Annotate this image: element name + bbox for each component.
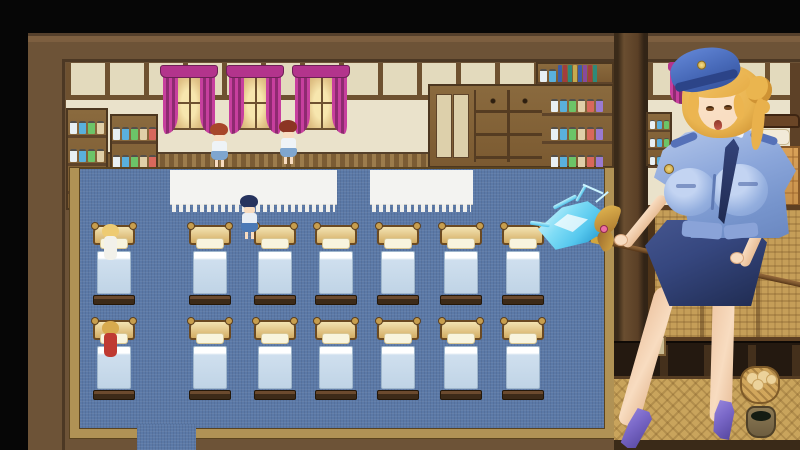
screen-seam: [756, 210, 760, 337]
hospital-bed: [379, 225, 417, 305]
bed-knob: [351, 317, 359, 325]
potion-jar-icon: [596, 99, 603, 112]
potion-jar-icon: [664, 120, 669, 129]
potion-jar-icon: [149, 155, 156, 168]
potion-jar-icon: [657, 138, 662, 147]
potion-jar-icon: [122, 155, 129, 168]
hospital-bed: [317, 225, 355, 305]
bed-sheet: [193, 251, 227, 294]
bed-pillow: [509, 238, 537, 249]
shelf-row: [648, 114, 670, 132]
bed-sheet: [258, 251, 292, 294]
potion-jar-icon: [113, 155, 120, 168]
bed-knob: [438, 222, 446, 230]
hospital-bed: [379, 320, 417, 400]
bed-sheet: [381, 346, 415, 389]
bed-knob: [91, 222, 99, 230]
potion-jar-icon: [587, 99, 594, 112]
cabinet-doors: [432, 90, 472, 162]
npc-skirt: [211, 151, 228, 160]
npc-nurse-redhead[interactable]: [209, 123, 229, 169]
potion-jar-icon: [560, 99, 567, 112]
potion-jar-icon: [569, 127, 576, 140]
bed-knob: [187, 222, 195, 230]
bed-sheet: [381, 251, 415, 294]
potion-jar-icon: [549, 69, 556, 82]
book-icon: [563, 65, 567, 82]
bed-sheet: [444, 251, 478, 294]
floor-edge-trim: [614, 440, 800, 450]
screen-post: [648, 210, 655, 337]
bread-icon: [766, 374, 777, 385]
potion-jar-icon: [664, 156, 669, 165]
potion-jar-icon: [650, 138, 655, 147]
potion-jar-icon: [79, 121, 86, 134]
bed-knob: [538, 222, 546, 230]
potion-jar-icon: [560, 127, 567, 140]
bed-knob: [129, 222, 137, 230]
bed-knob: [500, 222, 508, 230]
bed-knob: [438, 317, 446, 325]
potion-jar-icon: [140, 127, 147, 140]
bed-footboard: [315, 390, 357, 400]
bread-icon: [752, 379, 764, 391]
bed-pillow: [384, 333, 412, 344]
pillow: [714, 129, 750, 145]
npc-player-bluehair[interactable]: [239, 195, 259, 241]
book-row: [558, 65, 597, 82]
bed-sheet: [444, 346, 478, 389]
potion-jar-icon: [131, 127, 138, 140]
shelf-row: [648, 150, 670, 168]
shelf-row: [648, 132, 670, 150]
curtain-right: [332, 70, 347, 134]
side-room-bed: [708, 114, 800, 206]
potion-jar-icon: [88, 121, 95, 134]
potion-jar-icon: [540, 69, 547, 82]
cooking-pot-icon: [746, 406, 776, 438]
bed-pillow: [509, 333, 537, 344]
potion-jar-icon: [97, 149, 104, 162]
bed-sheet: [319, 346, 353, 389]
potion-jar-icon: [122, 127, 129, 140]
potion-shelf-icon: [646, 112, 672, 166]
pillow: [754, 129, 790, 145]
potion-jar-icon: [578, 99, 585, 112]
shelf-row: [542, 88, 612, 116]
bed-knob: [351, 222, 359, 230]
potion-jar-icon: [551, 155, 558, 168]
potion-jar-icon: [569, 99, 576, 112]
potion-jar-icon: [657, 156, 662, 165]
bed-pillow: [447, 238, 475, 249]
potion-jar-icon: [578, 127, 585, 140]
game-viewport[interactable]: [0, 0, 800, 450]
bed-knob: [538, 317, 546, 325]
book-icon: [568, 65, 572, 82]
bed-pillow: [322, 238, 350, 249]
bed-knob: [313, 317, 321, 325]
potion-jar-icon: [70, 149, 77, 162]
bed-footboard: [254, 295, 296, 305]
npc-legs: [215, 160, 224, 167]
npc-skirt: [241, 223, 258, 232]
jar-shelves: [542, 88, 612, 164]
bed-knob: [500, 317, 508, 325]
bed-pillow: [322, 333, 350, 344]
potion-jar-icon: [587, 127, 594, 140]
bed-headrail: [708, 114, 800, 128]
bed-knob: [476, 317, 484, 325]
potion-jar-icon: [596, 127, 603, 140]
bed-knob: [290, 222, 298, 230]
curtain-valance: [226, 65, 284, 78]
bed-sheet: [258, 346, 292, 389]
npc-skirt: [280, 148, 297, 157]
book-icon: [588, 65, 592, 82]
hospital-bed: [191, 225, 229, 305]
medicine-cabinet: [428, 84, 614, 168]
potion-jar-icon: [97, 121, 104, 134]
bed-pillow: [196, 238, 224, 249]
shelf-row: [112, 116, 156, 144]
curtain-valance: [160, 65, 218, 78]
potion-jar-icon: [551, 127, 558, 140]
bed-footboard: [254, 390, 296, 400]
npc-legs: [245, 232, 254, 239]
carpet-doorway-gap: [137, 424, 196, 450]
potion-jar-icon: [578, 155, 585, 168]
panel-post: [704, 345, 712, 377]
quilted-blanket: [708, 146, 800, 206]
panel-post: [792, 345, 800, 377]
door-panel: [453, 94, 469, 158]
bed-footboard: [502, 390, 544, 400]
potion-jar-icon: [596, 155, 603, 168]
hospital-bed: [442, 320, 480, 400]
bed-knob: [375, 317, 383, 325]
bed-pillow: [261, 238, 289, 249]
side-room-curtain: [670, 64, 708, 104]
curtain-left: [163, 70, 178, 134]
npc-patient-red[interactable]: [100, 321, 120, 357]
bed-footboard: [377, 295, 419, 305]
npc-body: [104, 236, 117, 260]
book-icon: [578, 65, 582, 82]
bed-knob: [290, 317, 298, 325]
bed-footboard: [93, 295, 135, 305]
potion-jar-icon: [70, 121, 77, 134]
hospital-bed: [504, 320, 542, 400]
bed-pillow: [384, 238, 412, 249]
bed-knob: [252, 317, 260, 325]
bed-sheet: [506, 346, 540, 389]
hospital-bed: [256, 225, 294, 305]
bed-footboard: [440, 390, 482, 400]
bed-knob: [375, 222, 383, 230]
curtain-left: [229, 70, 244, 134]
bed-knob: [187, 317, 195, 325]
bread-basket-icon: [740, 366, 780, 404]
bed-footboard: [502, 295, 544, 305]
potion-jar-icon: [587, 155, 594, 168]
bed-sheet: [193, 346, 227, 389]
bed-footboard: [93, 390, 135, 400]
npc-legs: [284, 157, 293, 164]
book-icon: [573, 65, 577, 82]
bed-footboard: [440, 295, 482, 305]
shelf-row: [68, 138, 106, 166]
potion-jar-icon: [140, 155, 147, 168]
bed-knob: [413, 222, 421, 230]
hospital-bed: [256, 320, 294, 400]
potion-jar-icon: [569, 155, 576, 168]
book-icon: [593, 65, 597, 82]
bed-knob: [91, 317, 99, 325]
npc-nurse-pigtails[interactable]: [278, 120, 298, 166]
bed-pillow: [196, 333, 224, 344]
bed-sheet: [506, 251, 540, 294]
bed-footboard: [377, 390, 419, 400]
cabinet-drawers: [474, 90, 542, 162]
bed-footboard: [189, 390, 231, 400]
hospital-bed: [191, 320, 229, 400]
potion-jar-icon: [657, 120, 662, 129]
potion-jar-icon: [149, 127, 156, 140]
potion-jar-icon: [79, 149, 86, 162]
top-shelf-with-books: [536, 62, 614, 86]
hospital-bed: [317, 320, 355, 400]
hospital-bed: [442, 225, 480, 305]
bed-pillow: [447, 333, 475, 344]
potion-jar-icon: [650, 156, 655, 165]
bed-sheet: [319, 251, 353, 294]
book-icon: [583, 65, 587, 82]
potion-jar-icon: [131, 155, 138, 168]
shelf-row: [542, 116, 612, 144]
npc-patient-blonde[interactable]: [100, 224, 120, 260]
shelf-row: [68, 110, 106, 138]
bed-knob: [225, 317, 233, 325]
screen-seam: [700, 210, 704, 337]
white-table: [370, 170, 473, 204]
potion-jar-icon: [113, 127, 120, 140]
bed-knob: [313, 222, 321, 230]
window-with-curtains: [163, 68, 215, 138]
bed-knob: [413, 317, 421, 325]
bed-footboard: [189, 295, 231, 305]
bed-footboard: [315, 295, 357, 305]
hospital-bed: [504, 225, 542, 305]
potion-jar-icon: [560, 155, 567, 168]
wicker-screen-wall: [648, 205, 800, 341]
room-divider-post: [614, 33, 648, 343]
curtain-valance: [292, 65, 350, 78]
bed-knob: [225, 222, 233, 230]
potion-jar-icon: [650, 120, 655, 129]
book-icon: [558, 65, 562, 82]
bed-pillow: [261, 333, 289, 344]
window-with-curtains: [295, 68, 347, 138]
potion-jar-icon: [664, 138, 669, 147]
door-panel: [436, 94, 452, 158]
potion-jar-icon: [551, 99, 558, 112]
picture-frame-icon: [652, 336, 666, 356]
window-with-curtains: [229, 68, 281, 138]
potion-jar-icon: [88, 149, 95, 162]
npc-body: [104, 333, 117, 357]
bed-knob: [476, 222, 484, 230]
bed-knob: [129, 317, 137, 325]
